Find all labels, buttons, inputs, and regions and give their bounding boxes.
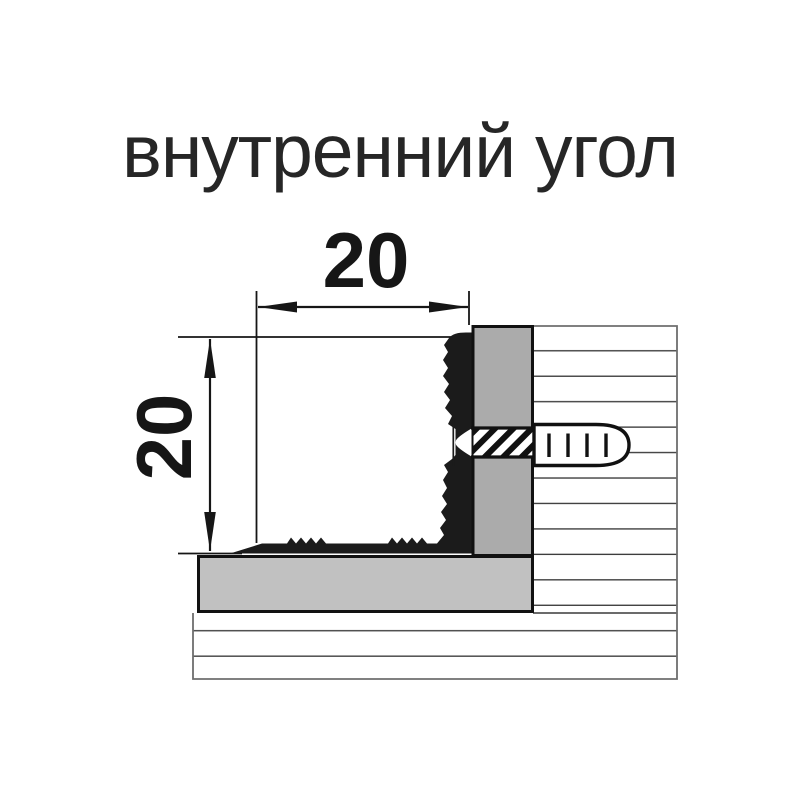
arrowhead-right-icon <box>429 302 468 313</box>
base-strip <box>199 557 533 612</box>
technical-drawing: 20 20 <box>0 0 800 800</box>
arrowhead-up-icon <box>204 339 216 378</box>
arrowhead-down-icon <box>204 512 216 551</box>
dimension-width <box>257 291 470 543</box>
wall-section-hatching <box>193 326 677 679</box>
corner-profile-cross-section <box>230 333 472 554</box>
height-dimension-value: 20 <box>120 394 208 481</box>
wall-anchor-icon <box>534 425 629 466</box>
width-dimension-value: 20 <box>323 216 410 304</box>
product-diagram: внутренний угол <box>0 0 800 800</box>
dimension-height <box>178 337 462 554</box>
screw-shank-icon <box>471 428 534 457</box>
arrowhead-left-icon <box>258 302 297 313</box>
